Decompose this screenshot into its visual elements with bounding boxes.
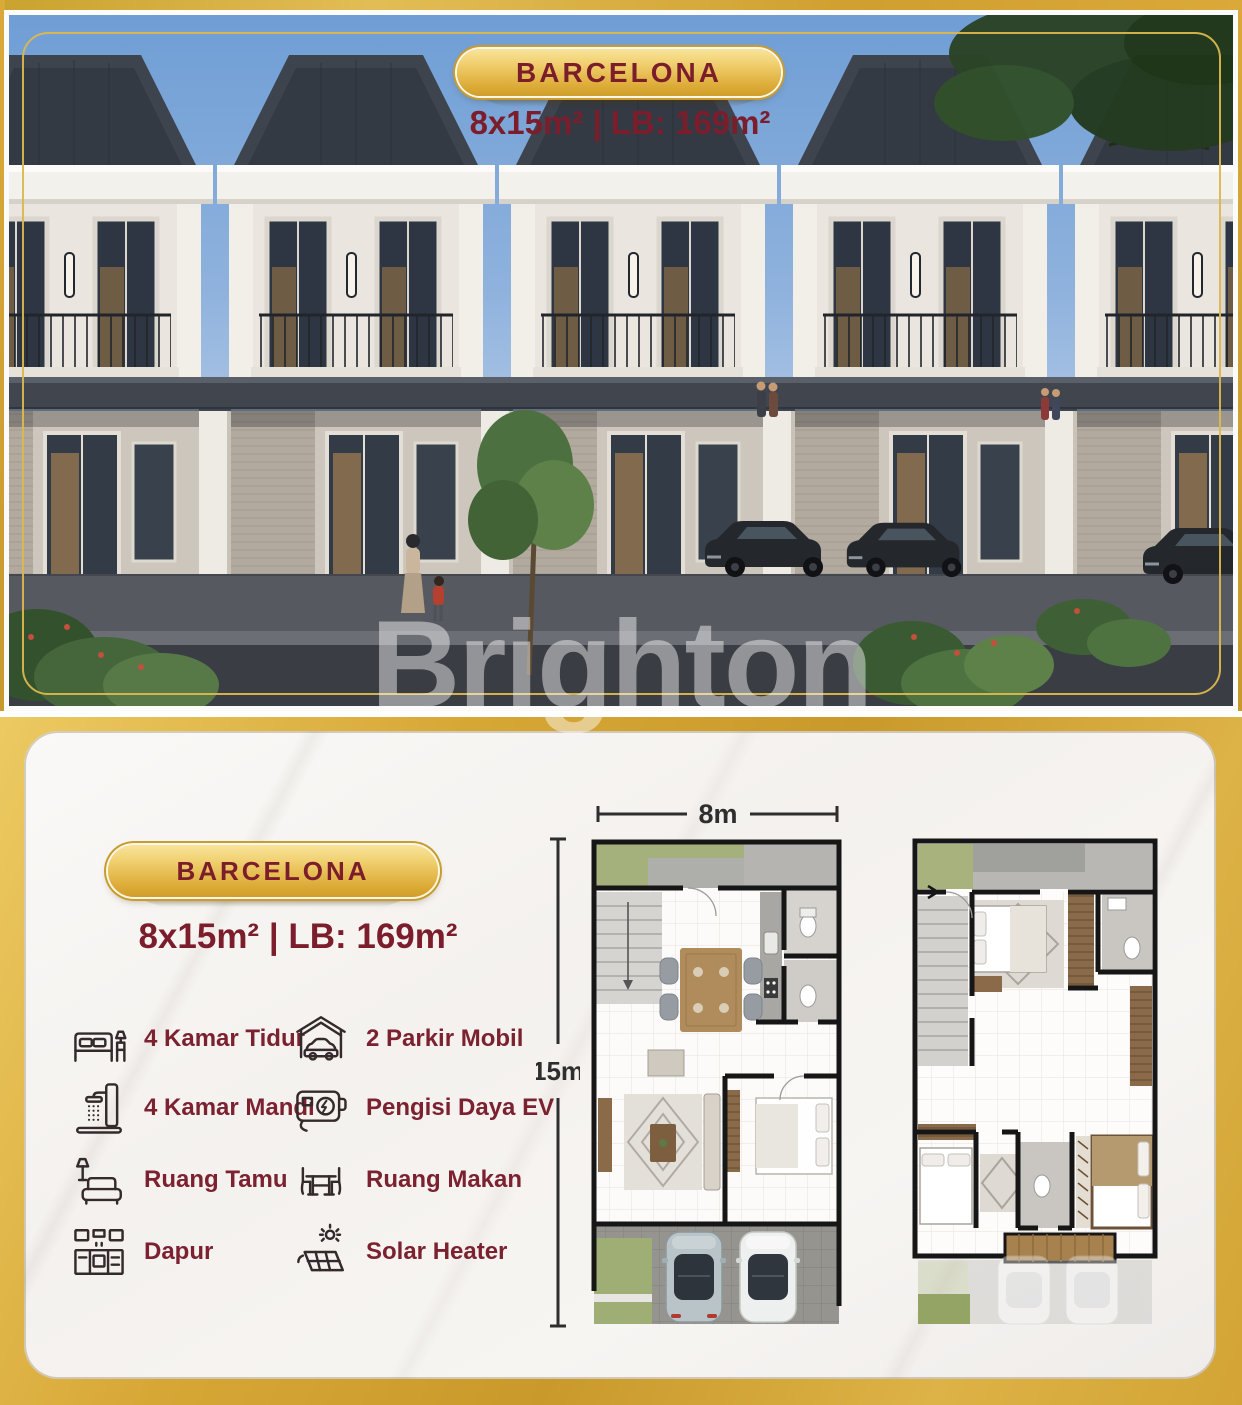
feature-label: Solar Heater — [366, 1238, 507, 1266]
hero-spec: 8x15m² | LB: 169m² — [400, 104, 840, 142]
floorplan-ground — [588, 836, 845, 1330]
ev-charger-icon — [292, 1079, 350, 1137]
shower-icon — [70, 1079, 128, 1137]
car-top-view — [736, 1232, 800, 1322]
feature-label: 2 Parkir Mobil — [366, 1025, 523, 1053]
dimension-width: 8m — [595, 794, 840, 830]
hero-badge-label: BARCELONA — [516, 57, 722, 89]
solar-icon — [292, 1223, 350, 1281]
bed-icon — [70, 1010, 128, 1068]
carport-icon — [292, 1010, 350, 1068]
kitchen-icon — [70, 1223, 128, 1281]
feature-label: Ruang Tamu — [144, 1166, 288, 1194]
feature-label: Pengisi Daya EV — [366, 1094, 554, 1122]
width-label: 8m — [698, 799, 737, 829]
hero-badge: BARCELONA — [457, 49, 781, 96]
dining-icon — [292, 1151, 350, 1209]
plan-badge-label: BARCELONA — [176, 856, 369, 887]
sofa-icon — [70, 1151, 128, 1209]
car-top-view — [662, 1232, 726, 1322]
feature-carport: 2 Parkir Mobil — [292, 1008, 523, 1070]
feature-label: Dapur — [144, 1238, 213, 1266]
feature-solar-heater: Solar Heater — [292, 1221, 507, 1283]
tree-foliage — [934, 15, 1233, 151]
plan-spec: 8x15m² | LB: 169m² — [88, 917, 508, 957]
feature-kitchen: Dapur — [70, 1221, 213, 1283]
dimension-height: 15m — [536, 836, 580, 1330]
feature-living-room: Ruang Tamu — [70, 1149, 288, 1211]
floorplan-upper — [910, 836, 1160, 1330]
feature-dining-room: Ruang Makan — [292, 1149, 522, 1211]
feature-ev-charger: Pengisi Daya EV — [292, 1077, 554, 1139]
feature-label: 4 Kamar Tidur — [144, 1025, 305, 1053]
feature-label: 4 Kamar Mandi — [144, 1094, 315, 1122]
details-card: BARCELONA 8x15m² | LB: 169m² 4 Kamar Tid… — [24, 731, 1216, 1379]
feature-bedrooms: 4 Kamar Tidur — [70, 1008, 305, 1070]
details-section: BARCELONA 8x15m² | LB: 169m² 4 Kamar Tid… — [0, 711, 1242, 1405]
height-label: 15m — [536, 1056, 580, 1086]
feature-bathrooms: 4 Kamar Mandi — [70, 1077, 315, 1139]
lawn-patch — [918, 1294, 970, 1324]
plan-badge: BARCELONA — [108, 845, 438, 897]
feature-label: Ruang Makan — [366, 1166, 522, 1194]
